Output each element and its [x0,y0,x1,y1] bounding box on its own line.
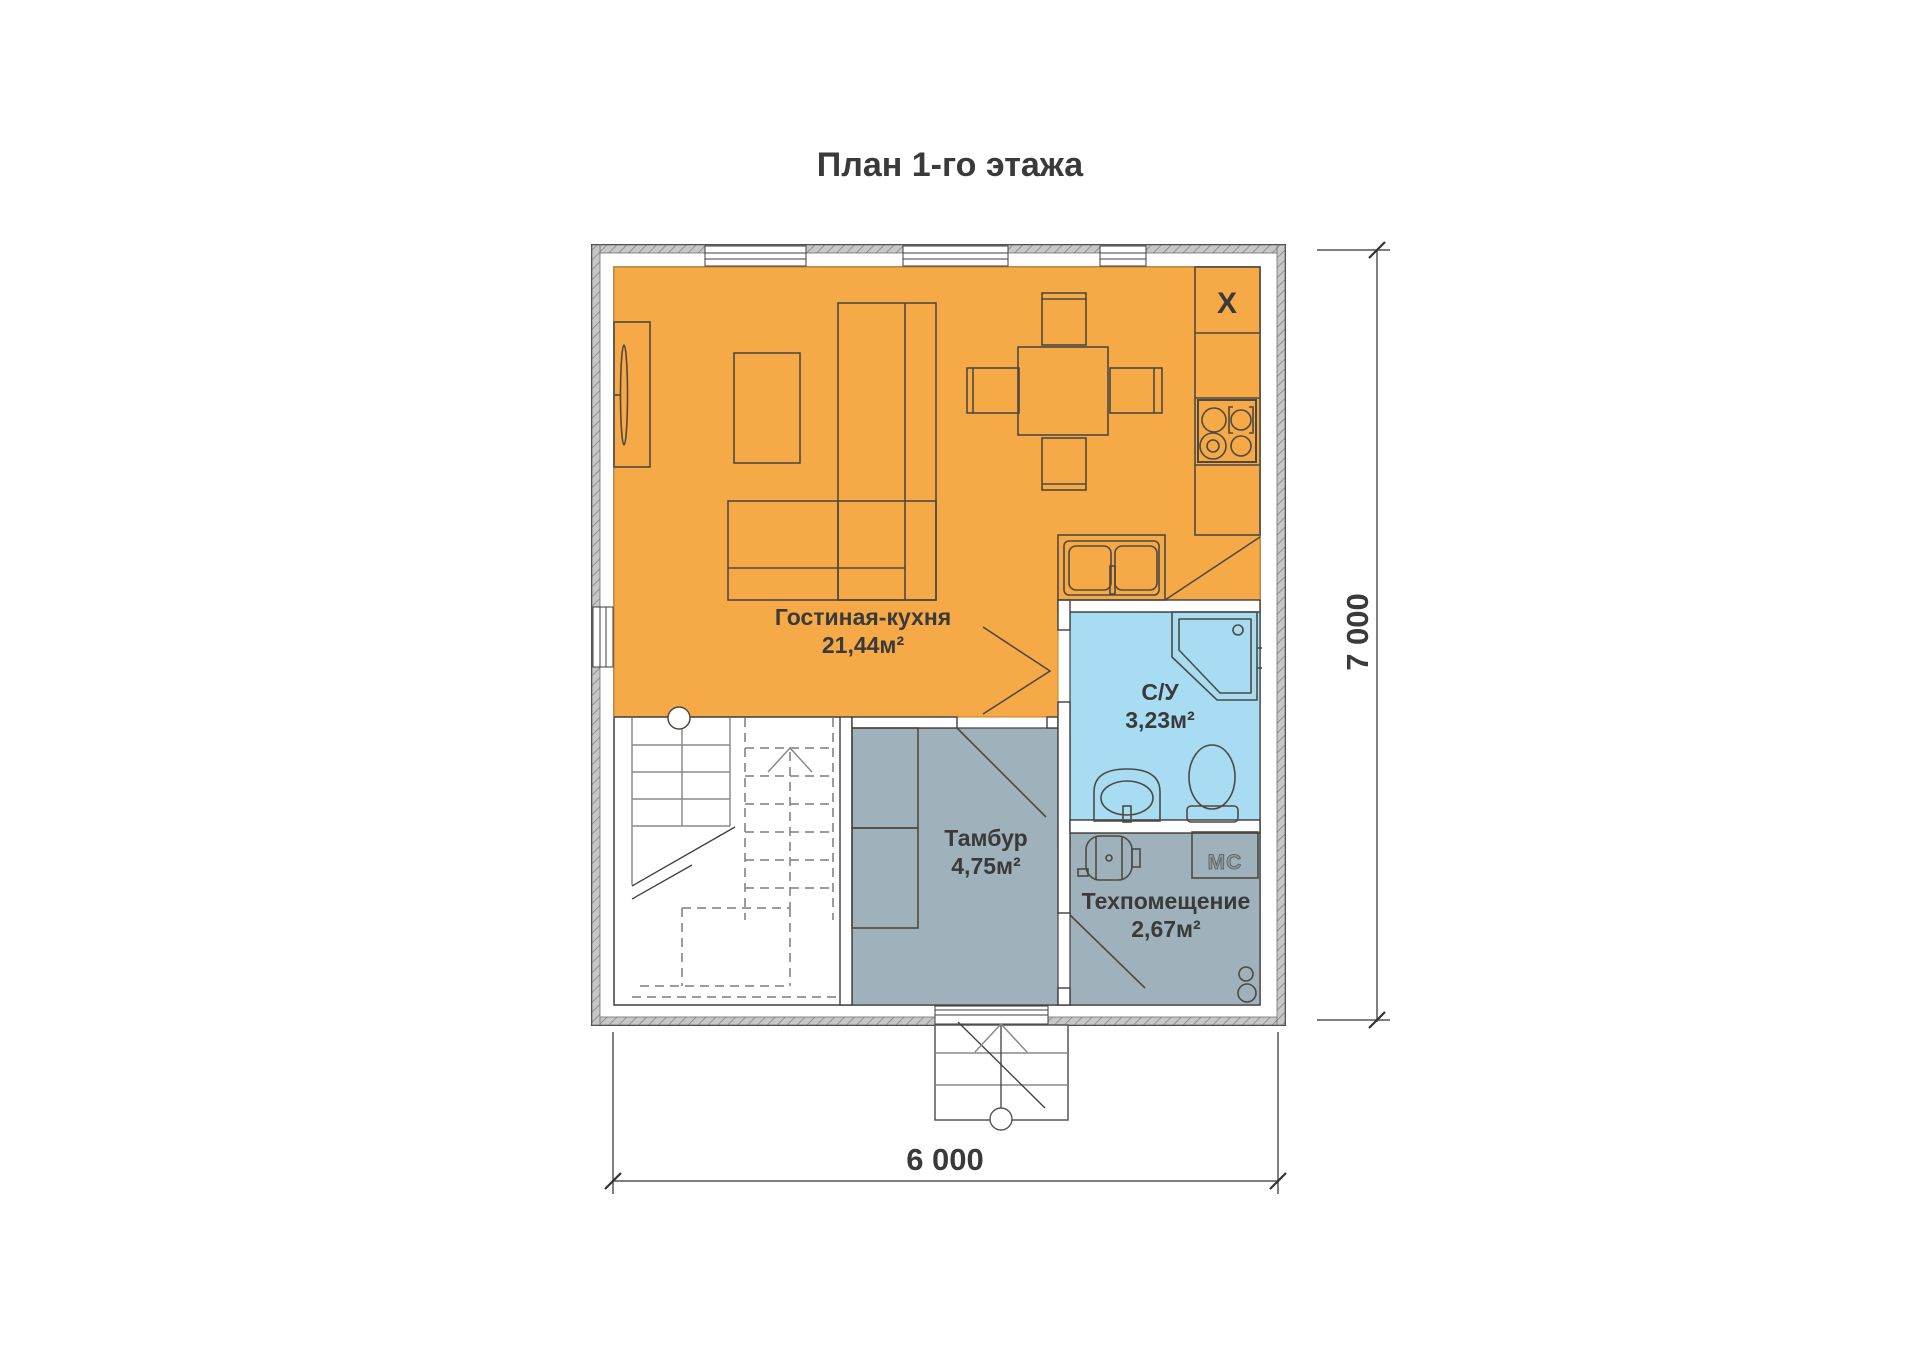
label-vestibule-area: 4,75м² [951,853,1021,879]
label-living-area: 21,44м² [822,632,905,658]
entrance-porch [935,1022,1068,1130]
dimension-height-label: 7 000 [1340,593,1375,671]
floor-plan-drawing: X МС [0,0,1922,1359]
dimension-height: 7 000 [1317,242,1390,1028]
label-tech-area: 2,67м² [1131,916,1201,942]
window-icon [705,246,806,266]
window-icon [593,607,613,667]
fridge-marker-label: X [1217,287,1237,320]
label-bathroom-area: 3,23м² [1125,707,1195,733]
washing-machine-label: МС [1208,851,1243,874]
fridge-marker: X [1217,287,1237,320]
floor-plan-sheet: X МС [0,0,1922,1359]
window-icon [903,246,1008,266]
entrance-door [935,1006,1048,1024]
label-bathroom-name: С/У [1141,679,1179,705]
page-title: План 1-го этажа [817,146,1084,184]
label-tech-name: Техпомещение [1082,888,1251,914]
label-living-name: Гостиная-кухня [775,604,951,630]
dimension-width-label: 6 000 [906,1142,984,1177]
stair-post [668,707,690,729]
porch-post [990,1108,1012,1130]
window-icon [1100,246,1146,266]
label-vestibule-name: Тамбур [944,825,1027,851]
